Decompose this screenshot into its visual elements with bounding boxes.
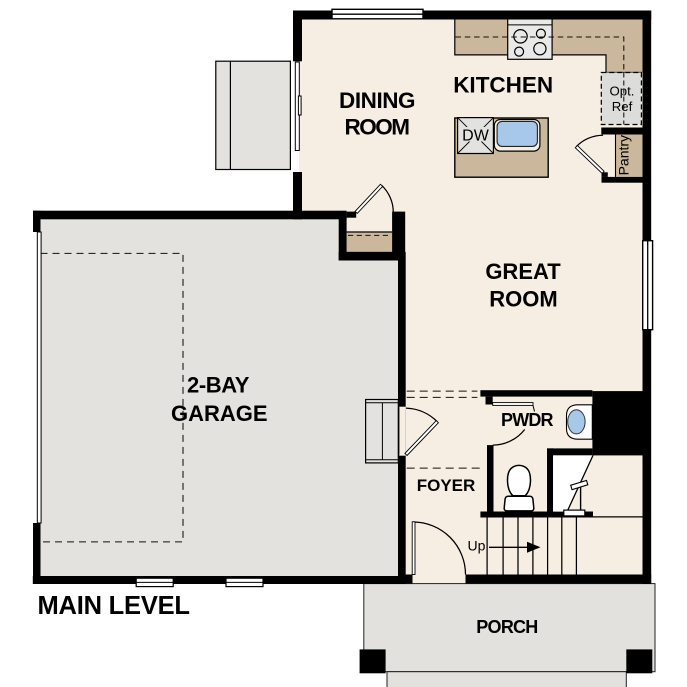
svg-text:FOYER: FOYER — [417, 476, 476, 495]
svg-text:ROOM: ROOM — [489, 287, 557, 312]
svg-text:Up: Up — [468, 538, 486, 554]
svg-text:DINING: DINING — [339, 88, 416, 113]
svg-text:ROOM: ROOM — [345, 114, 411, 139]
svg-text:GARAGE: GARAGE — [171, 401, 267, 426]
svg-text:PWDR: PWDR — [501, 410, 554, 430]
svg-text:Ref: Ref — [612, 99, 633, 114]
svg-text:Pantry: Pantry — [616, 135, 632, 175]
svg-text:MAIN LEVEL: MAIN LEVEL — [38, 592, 191, 620]
svg-text:KITCHEN: KITCHEN — [453, 73, 553, 98]
svg-text:Opt.: Opt. — [610, 83, 635, 98]
svg-text:2-BAY: 2-BAY — [187, 373, 250, 398]
svg-text:DW: DW — [462, 127, 490, 144]
svg-text:PORCH: PORCH — [476, 617, 538, 637]
svg-text:GREAT: GREAT — [485, 259, 561, 284]
